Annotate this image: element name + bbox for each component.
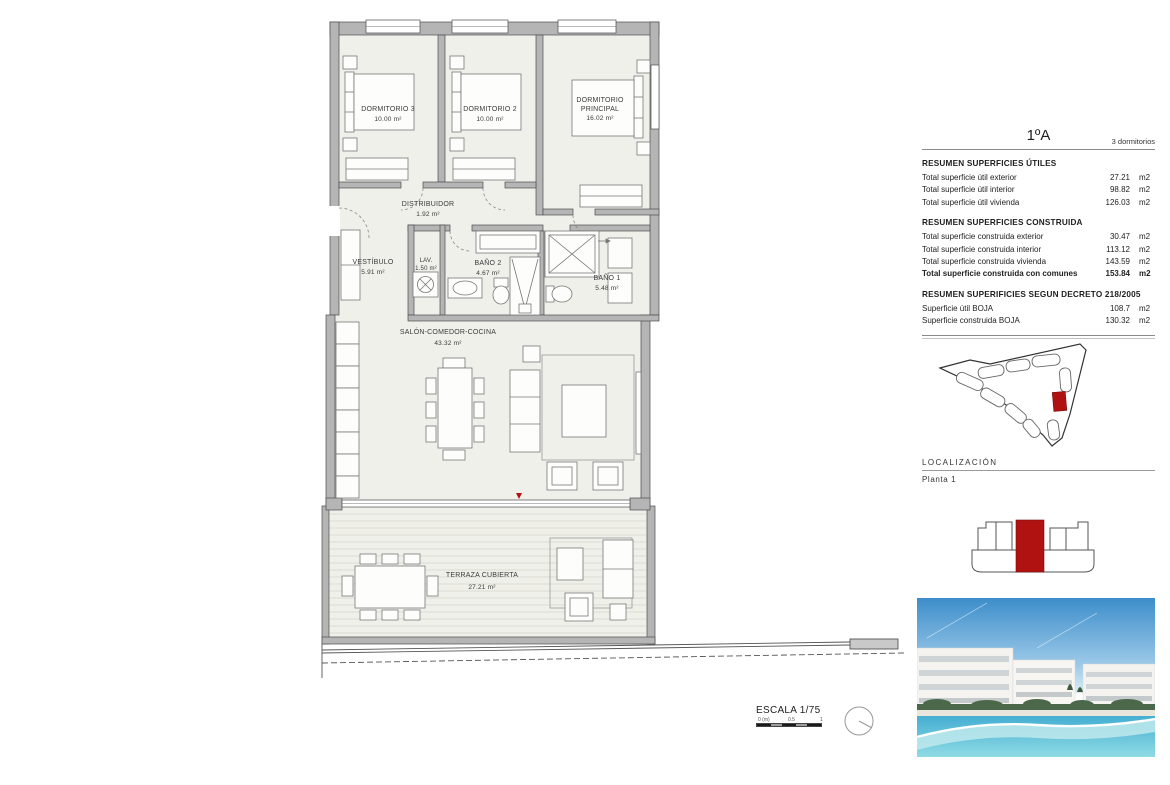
- unit-bedrooms: 3 dormitorios: [1112, 137, 1155, 146]
- room-label-bano-1: BAÑO 1: [594, 273, 621, 282]
- row-unit: m2: [1139, 303, 1155, 315]
- table-row: Total superficie construida vivienda 143…: [922, 256, 1155, 268]
- section-header-construida: RESUMEN SUPERFICIES CONSTRUIDA: [922, 218, 1155, 227]
- scale-label: ESCALA 1/75: [756, 705, 840, 716]
- row-label: Total superficie construida exterior: [922, 231, 1090, 243]
- room-label-bano-2: BAÑO 2: [475, 258, 502, 267]
- scale-tick-1: 1: [820, 717, 823, 723]
- room-label-dormitorio-principal-2: PRINCIPAL: [581, 106, 619, 113]
- room-area-dormitorio-2: 10.00 m²: [476, 116, 504, 123]
- table-row-total: Total superficie construida con comunes …: [922, 268, 1155, 280]
- row-unit: m2: [1139, 315, 1155, 327]
- row-value: 98.82: [1090, 184, 1130, 196]
- room-area-dormitorio-principal: 16.02 m²: [586, 115, 614, 122]
- unit-title-row: 1ºA 3 dormitorios: [922, 126, 1155, 150]
- scale-bar: [756, 723, 822, 727]
- row-value: 113.12: [1090, 244, 1130, 256]
- section-header-utiles: RESUMEN SUPERFICIES ÚTILES: [922, 159, 1155, 168]
- row-label: Total superficie construida interior: [922, 244, 1090, 256]
- localizacion-planta: Planta 1: [922, 475, 1155, 484]
- scale-tick-05: 0.5: [788, 717, 795, 723]
- row-value: 126.03: [1090, 197, 1130, 209]
- row-unit: m2: [1139, 244, 1155, 256]
- room-label-distribuidor: DISTRIBUIDOR: [402, 201, 455, 208]
- bed-dormitorio-principal: [572, 60, 650, 207]
- row-label: Superficie útil BOJA: [922, 303, 1090, 315]
- elevation-diagram: [966, 512, 1102, 580]
- floorplan-svg: DORMITORIO 3 10.00 m² DORMITORIO 2 10.00…: [310, 10, 910, 750]
- photo-render: [917, 598, 1155, 757]
- room-label-lavadero: LAV.: [420, 258, 433, 264]
- localizacion-title: LOCALIZACIÓN: [922, 458, 1155, 471]
- row-value: 130.32: [1090, 315, 1130, 327]
- row-label: Total superficie construida vivienda: [922, 256, 1090, 268]
- table-row: Total superficie construida interior 113…: [922, 244, 1155, 256]
- table-row: Total superficie útil exterior 27.21 m2: [922, 172, 1155, 184]
- row-unit: m2: [1139, 172, 1155, 184]
- row-value: 108.7: [1090, 303, 1130, 315]
- room-area-vestibulo: 5.91 m²: [361, 269, 385, 276]
- room-area-bano-2: 4.67 m²: [476, 270, 500, 277]
- room-area-terraza: 27.21 m²: [468, 584, 496, 591]
- room-label-salon: SALÓN-COMEDOR-COCINA: [400, 327, 496, 336]
- summary-panel: 1ºA 3 dormitorios RESUMEN SUPERFICIES ÚT…: [922, 126, 1155, 339]
- room-area-lavadero: 1.50 m²: [415, 266, 437, 272]
- room-area-dormitorio-3: 10.00 m²: [374, 116, 402, 123]
- boundary-lines: [322, 639, 904, 678]
- row-label: Total superficie útil exterior: [922, 172, 1090, 184]
- row-label: Total superficie útil interior: [922, 184, 1090, 196]
- section-header-decreto: RESUMEN SUPERIFICIES SEGUN DECRETO 218/2…: [922, 290, 1155, 299]
- room-label-dormitorio-3: DORMITORIO 3: [361, 106, 415, 113]
- localizacion-block: LOCALIZACIÓN Planta 1: [922, 458, 1155, 484]
- row-value: 27.21: [1090, 172, 1130, 184]
- room-label-dormitorio-principal: DORMITORIO: [576, 97, 624, 104]
- compass-icon: [840, 702, 880, 742]
- row-label: Total superficie construida con comunes: [922, 268, 1090, 280]
- row-unit: m2: [1139, 268, 1155, 280]
- row-unit: m2: [1139, 184, 1155, 196]
- elevation-highlight-unit: [1016, 520, 1044, 572]
- room-area-salon: 43.32 m²: [434, 340, 462, 347]
- row-unit: m2: [1139, 197, 1155, 209]
- scale-block: ESCALA 1/75 0 (m) 0.5 1: [756, 705, 840, 727]
- table-row: Total superficie construida exterior 30.…: [922, 231, 1155, 243]
- room-area-bano-1: 5.48 m²: [595, 285, 619, 292]
- row-unit: m2: [1139, 256, 1155, 268]
- row-label: Superficie construida BOJA: [922, 315, 1090, 327]
- row-value: 143.59: [1090, 256, 1130, 268]
- room-label-vestibulo: VESTÍBULO: [352, 257, 393, 266]
- kitchen-cabinets: [336, 322, 359, 498]
- row-value: 153.84: [1090, 268, 1130, 280]
- site-highlight-unit: [1052, 391, 1067, 411]
- table-row: Superficie construida BOJA 130.32 m2: [922, 315, 1155, 327]
- row-unit: m2: [1139, 231, 1155, 243]
- room-area-distribuidor: 1.92 m²: [416, 211, 440, 218]
- room-label-dormitorio-2: DORMITORIO 2: [463, 106, 517, 113]
- table-row: Superficie útil BOJA 108.7 m2: [922, 303, 1155, 315]
- site-plan-diagram: [920, 336, 1155, 454]
- row-label: Total superficie útil vivienda: [922, 197, 1090, 209]
- row-value: 30.47: [1090, 231, 1130, 243]
- scale-tick-0: 0 (m): [758, 717, 770, 723]
- room-label-terraza: TERRAZA CUBIERTA: [446, 572, 518, 579]
- washer-icon: [413, 272, 438, 297]
- scale-ticks: 0 (m) 0.5 1: [756, 716, 840, 723]
- table-row: Total superficie útil interior 98.82 m2: [922, 184, 1155, 196]
- table-row: Total superficie útil vivienda 126.03 m2: [922, 197, 1155, 209]
